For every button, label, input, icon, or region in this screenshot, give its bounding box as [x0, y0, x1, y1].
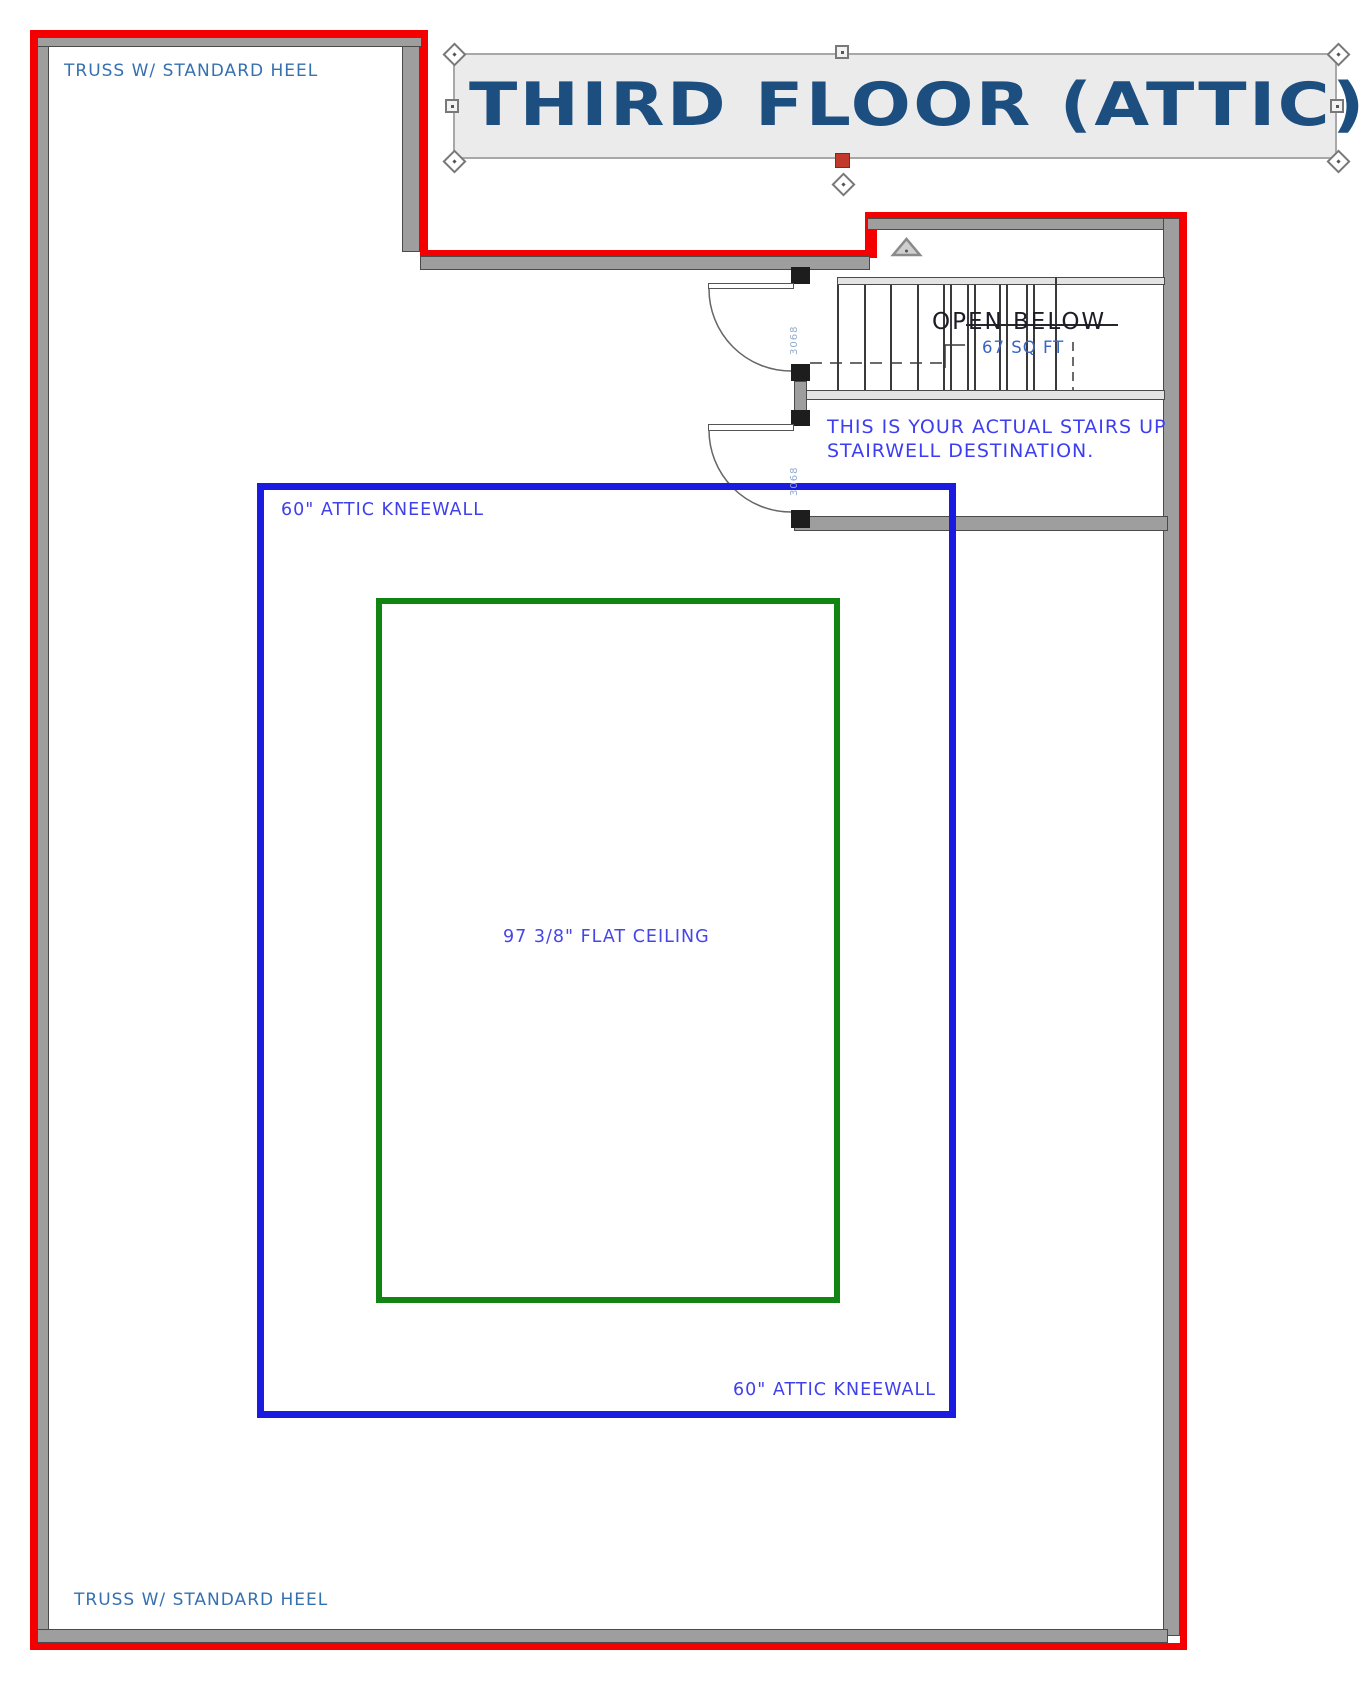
door-top-swing-arc	[709, 289, 791, 371]
door-top-size-label[interactable]: 3068	[789, 308, 804, 372]
walk-line-corner	[945, 345, 965, 368]
selection-handle-right-center[interactable]	[1330, 99, 1344, 113]
move-handle[interactable]	[835, 153, 850, 168]
stairs-note-line2[interactable]: STAIRWELL DESTINATION.	[827, 440, 1094, 462]
selection-handle-top-center[interactable]	[835, 45, 849, 59]
door-bottom-size-label[interactable]: 3068	[789, 449, 804, 513]
floor-plan-canvas: TRUSS W/ STANDARD HEEL OPEN BELOW 67 SQ …	[0, 0, 1370, 1686]
open-below-label[interactable]: OPEN BELOW	[932, 309, 1106, 335]
stairs-note-line1[interactable]: THIS IS YOUR ACTUAL STAIRS UP	[827, 416, 1167, 438]
kneewall-label-bottom[interactable]: 60" ATTIC KNEEWALL	[733, 1380, 936, 1400]
level-marker-dot	[905, 250, 908, 253]
truss-label-top[interactable]: TRUSS W/ STANDARD HEEL	[64, 61, 318, 81]
flat-ceiling-label[interactable]: 97 3/8" FLAT CEILING	[503, 927, 710, 947]
level-marker-triangle	[893, 239, 920, 255]
page-title: THIRD FLOOR (ATTIC)	[469, 55, 1367, 155]
title-text-box[interactable]: THIRD FLOOR (ATTIC)	[453, 53, 1337, 159]
truss-label-bottom[interactable]: TRUSS W/ STANDARD HEEL	[74, 1590, 328, 1610]
kneewall-label-top[interactable]: 60" ATTIC KNEEWALL	[281, 500, 484, 520]
flat-ceiling-rectangle[interactable]	[376, 598, 840, 1303]
selection-handle-left-center[interactable]	[445, 99, 459, 113]
open-below-area-label[interactable]: 67 SQ FT	[982, 338, 1064, 357]
